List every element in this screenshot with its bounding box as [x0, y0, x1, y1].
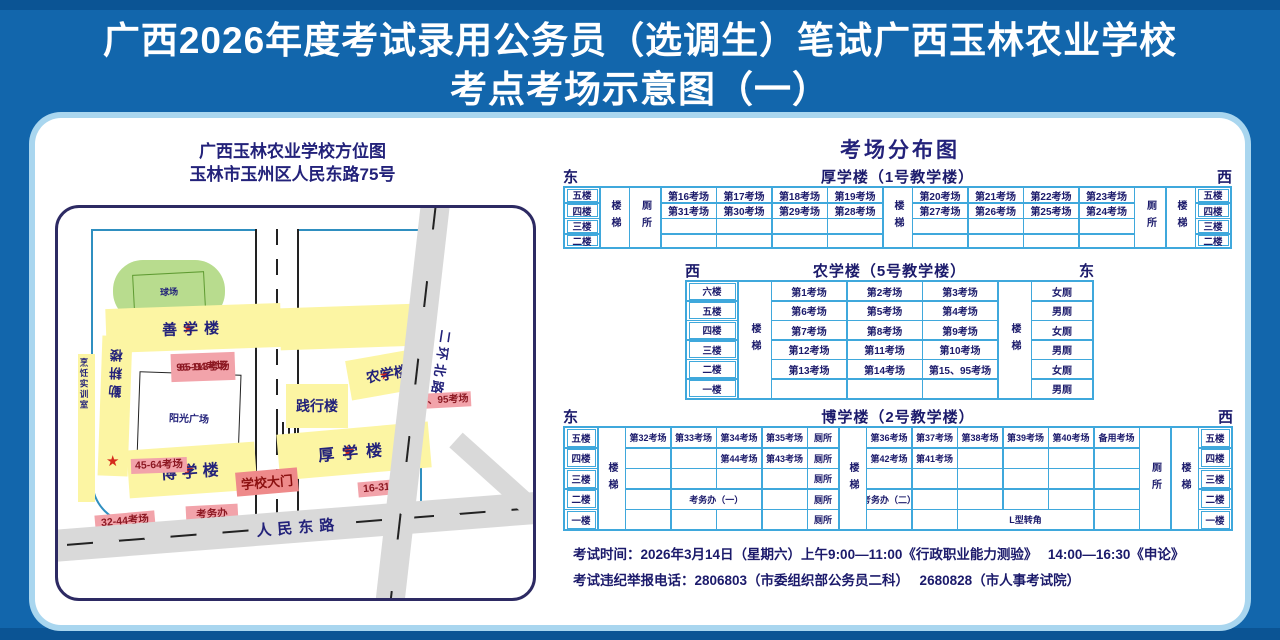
floor-label: 二楼 [1199, 490, 1231, 509]
exam-info: 考试时间：2026年3月14日（星期六）上午9:00—11:00《行政职业能力测… [573, 542, 1233, 594]
boxue-table-dir-left: 东 [563, 406, 578, 427]
empty-cell [672, 449, 716, 468]
room-cell: 第2考场 [848, 282, 922, 300]
empty-cell [1004, 490, 1048, 509]
map-heading: 广西玉林农业学校方位图 玉林市玉州区人民东路75号 [55, 140, 530, 186]
room-cell: 厕所 [808, 428, 838, 447]
empty-cell [1080, 235, 1134, 247]
room-cell: 第22考场 [1024, 188, 1078, 202]
floor-label: 六楼 [687, 282, 737, 300]
empty-cell [913, 510, 957, 529]
room-cell: 第14考场 [848, 360, 922, 378]
room-cell: 第16考场 [662, 188, 716, 202]
empty-cell [828, 219, 882, 233]
stairwell-cell: 楼梯 [999, 282, 1031, 398]
floor-label: 三楼 [1199, 469, 1231, 488]
room-cell: 第8考场 [848, 321, 922, 339]
floor-label: 一楼 [565, 510, 597, 529]
empty-cell [773, 219, 827, 233]
empty-cell [1049, 449, 1093, 468]
building-houxue-label: 厚学楼 [317, 436, 391, 466]
floor-label: 二楼 [565, 235, 599, 247]
distribution-heading: 考场分布图 [565, 134, 1235, 164]
empty-cell [772, 380, 846, 398]
top-edge-strip [0, 0, 1280, 10]
empty-cell [662, 219, 716, 233]
empty-cell [1095, 469, 1139, 488]
floor-label: 三楼 [687, 341, 737, 359]
floor-label: 四楼 [565, 449, 597, 468]
houxue-table-title: 厚学楼（1号教学楼） [821, 166, 974, 187]
floor-label: 五楼 [1199, 428, 1231, 447]
tag-line: 96-113考场 [176, 360, 230, 375]
room-cell: 第12考场 [772, 341, 846, 359]
room-cell: 第23考场 [1080, 188, 1134, 202]
room-cell: 第24考场 [1080, 204, 1134, 218]
boxue-table-title: 博学楼（2号教学楼） [821, 406, 974, 427]
stairwell-cell: 楼梯 [840, 428, 866, 529]
empty-cell [626, 449, 670, 468]
houxue-table-dir-left: 东 [563, 166, 578, 187]
building-jianxing: 践行楼 [286, 384, 348, 428]
room-cell: 第19考场 [828, 188, 882, 202]
room-cell: 第35考场 [763, 428, 807, 447]
room-cell: 男厕 [1032, 380, 1092, 398]
empty-cell [672, 469, 716, 488]
report-phone-line: 考试违纪举报电话：2806803（市委组织部公务员二科） 2680828（市人事… [573, 568, 1233, 594]
room-cell: 第11考场 [848, 341, 922, 359]
room-cell: 第10考场 [923, 341, 997, 359]
floor-label: 三楼 [565, 469, 597, 488]
sports-field-label: 球场 [132, 271, 206, 311]
empty-cell [1049, 490, 1093, 509]
room-cell: 第31考场 [662, 204, 716, 218]
building-pengren-label: 烹饪实训室 [78, 358, 90, 411]
room-cell: 第30考场 [717, 204, 771, 218]
stairwell-cell: 楼梯 [739, 282, 771, 398]
room-cell: 第43考场 [763, 449, 807, 468]
room-cell: 第42考场 [867, 449, 911, 468]
floor-label: 四楼 [687, 321, 737, 339]
room-cell: 第27考场 [913, 204, 967, 218]
campus-map: 球场 ★ 善学楼 烹饪实训室 勤耕楼 ★ 阳光广场 践行楼 ★ 农学楼 ★ 厚学… [55, 205, 536, 601]
nongxue-table-dir-right: 东 [1079, 260, 1094, 281]
empty-cell [763, 469, 807, 488]
nongxue-table-header: 西农学楼（5号教学楼）东 [685, 260, 1094, 281]
floor-label: 一楼 [1199, 510, 1231, 529]
room-cell: 第44考场 [717, 449, 761, 468]
room-cell: 第21考场 [969, 188, 1023, 202]
room-cell: 第28考场 [828, 204, 882, 218]
room-cell: 女厕 [1032, 282, 1092, 300]
room-cell: 男厕 [1032, 341, 1092, 359]
floor-label: 三楼 [565, 219, 599, 233]
empty-cell [717, 235, 771, 247]
empty-cell [1095, 510, 1139, 529]
room-cell: 第15、95考场 [923, 360, 997, 378]
exam-time-line: 考试时间：2026年3月14日（星期六）上午9:00—11:00《行政职业能力测… [573, 542, 1233, 568]
room-cell: 第41考场 [913, 449, 957, 468]
empty-cell [1004, 469, 1048, 488]
empty-cell [958, 449, 1002, 468]
floor-label: 二楼 [687, 360, 737, 378]
room-cell: 第25考场 [1024, 204, 1078, 218]
room-cell: 第17考场 [717, 188, 771, 202]
empty-cell [867, 510, 911, 529]
empty-cell [626, 490, 670, 509]
empty-cell [913, 235, 967, 247]
empty-cell [958, 469, 1002, 488]
room-cell: 厕所 [808, 469, 838, 488]
empty-cell [848, 380, 922, 398]
room-cell: 第29考场 [773, 204, 827, 218]
room-cell: 第37考场 [913, 428, 957, 447]
floor-label: 四楼 [565, 204, 599, 218]
room-cell: 第33考场 [672, 428, 716, 447]
houxue-table-header: 东厚学楼（1号教学楼）西 [563, 166, 1232, 187]
stairwell-cell: 楼梯 [601, 188, 629, 247]
floor-label: 五楼 [565, 188, 599, 202]
stairwell-cell: 楼梯 [1172, 428, 1198, 529]
floor-label: 一楼 [687, 380, 737, 398]
road-dash-line [356, 508, 526, 523]
building-qingeng-label: 勤耕楼 [106, 344, 127, 399]
map-heading-line1: 广西玉林农业学校方位图 [55, 140, 530, 163]
boxue-table-dir-right: 西 [1218, 406, 1233, 427]
empty-cell [626, 510, 670, 529]
room-cell: 第7考场 [772, 321, 846, 339]
floor-label: 二楼 [565, 490, 597, 509]
empty-cell [1024, 219, 1078, 233]
empty-cell [867, 469, 911, 488]
exam-rooms-tag-qingeng: 45-64考场 [131, 457, 187, 474]
room-cell: 考务办（一） [672, 490, 762, 509]
room-cell: 第20考场 [913, 188, 967, 202]
building-shanxue-label: 善学楼 [162, 316, 226, 339]
empty-cell [1080, 219, 1134, 233]
room-cell: 第39考场 [1004, 428, 1048, 447]
room-cell: 厕所 [808, 510, 838, 529]
stairwell-cell: 楼梯 [599, 428, 625, 529]
room-cell: 厕所 [808, 490, 838, 509]
floor-label: 三楼 [1196, 219, 1230, 233]
empty-cell [763, 510, 807, 529]
room-cell: 女厕 [1032, 360, 1092, 378]
floor-label: 二楼 [1196, 235, 1230, 247]
poster-title-line2: 考点考场示意图（一） [0, 65, 1280, 114]
houxue-table: 五楼四楼三楼二楼楼梯厕所第16考场第17考场第18考场第19考场第31考场第30… [563, 186, 1232, 249]
boxue-table: 五楼四楼三楼二楼一楼楼梯第32考场第33考场第34考场第35考场厕所第44考场第… [563, 426, 1233, 531]
empty-cell [1004, 449, 1048, 468]
room-cell: 备用考场 [1095, 428, 1139, 447]
poster-title-line1: 广西2026年度考试录用公务员（选调生）笔试广西玉林农业学校 [0, 16, 1280, 65]
empty-cell [626, 469, 670, 488]
floor-label: 四楼 [1199, 449, 1231, 468]
stairwell-cell: 厕所 [630, 188, 660, 247]
room-cell: 第9考场 [923, 321, 997, 339]
empty-cell [923, 380, 997, 398]
empty-cell [717, 219, 771, 233]
building-pengren: 烹饪实训室 [78, 354, 95, 502]
map-heading-line2: 玉林市玉州区人民东路75号 [55, 163, 530, 186]
room-cell: 厕所 [808, 449, 838, 468]
empty-cell [1095, 490, 1139, 509]
room-cell: 第18考场 [773, 188, 827, 202]
empty-cell [913, 469, 957, 488]
room-cell: 第34考场 [717, 428, 761, 447]
room-cell: 第40考场 [1049, 428, 1093, 447]
room-cell: 第3考场 [923, 282, 997, 300]
room-cell: 第6考场 [772, 302, 846, 320]
empty-cell [662, 235, 716, 247]
nongxue-table-title: 农学楼（5号教学楼） [813, 260, 966, 281]
building-unlabeled-bar [279, 304, 418, 351]
empty-cell [717, 510, 761, 529]
content-panel: 广西玉林农业学校方位图 玉林市玉州区人民东路75号 球场 ★ 善学楼 烹饪实训室… [35, 118, 1245, 625]
erhuan-road-label: 二环北路 [427, 329, 456, 401]
stairwell-cell: 楼梯 [1167, 188, 1195, 247]
empty-cell [1024, 235, 1078, 247]
room-cell: 考务办（二） [867, 490, 911, 509]
room-cell: 第32考场 [626, 428, 670, 447]
nongxue-table: 六楼五楼四楼三楼二楼一楼楼梯第1考场第2考场第3考场第6考场第5考场第4考场第7… [685, 280, 1094, 400]
stairwell-cell: 厕所 [1135, 188, 1165, 247]
boxue-table-header: 东博学楼（2号教学楼）西 [563, 406, 1233, 427]
renmin-road-label: 人民东路 [256, 513, 341, 541]
room-cell: 第26考场 [969, 204, 1023, 218]
empty-cell [958, 490, 1002, 509]
stairwell-cell: 楼梯 [884, 188, 912, 247]
room-cell: 第4考场 [923, 302, 997, 320]
empty-cell [913, 490, 957, 509]
empty-cell [969, 219, 1023, 233]
floor-label: 五楼 [565, 428, 597, 447]
empty-cell [763, 490, 807, 509]
empty-cell [1095, 449, 1139, 468]
room-cell: 第13考场 [772, 360, 846, 378]
empty-cell [969, 235, 1023, 247]
houxue-table-dir-right: 西 [1217, 166, 1232, 187]
floor-label: 五楼 [1196, 188, 1230, 202]
empty-cell [717, 469, 761, 488]
empty-cell [828, 235, 882, 247]
stairwell-cell: 厕所 [1140, 428, 1170, 529]
bottom-edge-strip [0, 628, 1280, 640]
empty-cell [773, 235, 827, 247]
road-dash-line [67, 529, 252, 546]
room-cell: 第36考场 [867, 428, 911, 447]
room-cell: 第38考场 [958, 428, 1002, 447]
room-cell: 第5考场 [848, 302, 922, 320]
room-cell: 女厕 [1032, 321, 1092, 339]
exam-rooms-tag-shanxue: 65-94考场 96-113考场 [171, 352, 236, 382]
nongxue-table-dir-left: 西 [685, 260, 700, 281]
empty-cell [913, 219, 967, 233]
room-cell: L型转角 [958, 510, 1093, 529]
poster-title: 广西2026年度考试录用公务员（选调生）笔试广西玉林农业学校 考点考场示意图（一… [0, 16, 1280, 114]
room-cell: 第1考场 [772, 282, 846, 300]
floor-label: 五楼 [687, 302, 737, 320]
room-cell: 男厕 [1032, 302, 1092, 320]
empty-cell [1049, 469, 1093, 488]
star-icon: ★ [106, 452, 119, 470]
empty-cell [672, 510, 716, 529]
floor-label: 四楼 [1196, 204, 1230, 218]
